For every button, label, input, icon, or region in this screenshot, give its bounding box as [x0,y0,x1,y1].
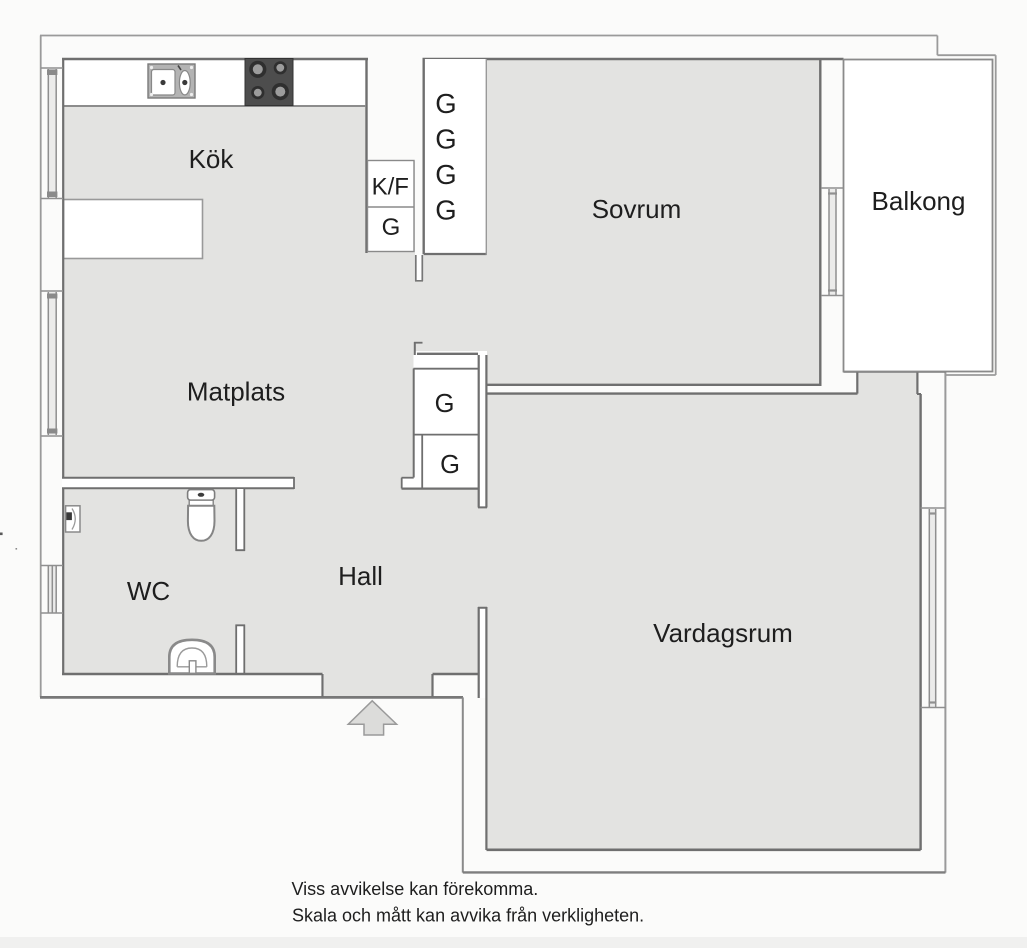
svg-text:G: G [435,159,456,190]
svg-text:G: G [435,124,456,155]
svg-text:Vardagsrum: Vardagsrum [653,618,793,648]
svg-text:Kök: Kök [189,144,235,174]
svg-text:Matplats: Matplats [187,377,285,407]
svg-text:WC: WC [127,576,170,606]
svg-text:Hall: Hall [338,561,383,591]
svg-text:Skala och mått kan avvika från: Skala och mått kan avvika från verklighe… [292,906,644,926]
svg-text:K/F: K/F [372,174,409,201]
svg-text:Balkong: Balkong [872,186,966,216]
svg-text:Sovrum: Sovrum [592,194,682,224]
svg-text:G: G [435,390,455,418]
svg-text:G: G [440,451,460,479]
svg-text:G: G [435,195,456,226]
svg-text:G: G [382,214,401,241]
svg-text:Viss avvikelse kan förekomma.: Viss avvikelse kan förekomma. [292,879,539,899]
svg-text:G: G [435,88,456,119]
